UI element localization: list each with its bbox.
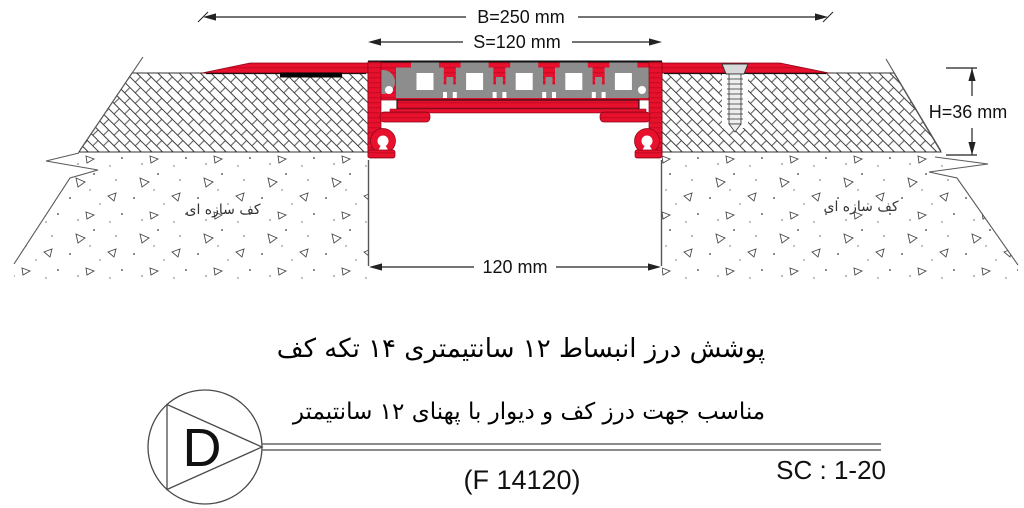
concrete-right — [662, 155, 1018, 283]
screed-left — [79, 73, 368, 152]
floor-label-left: کف سازه ای — [186, 202, 261, 218]
screed-right — [662, 73, 941, 152]
center-insert — [371, 63, 660, 99]
bridge-plate — [397, 100, 639, 109]
caption-line1: پوشش درز انبساط ۱۲ سانتیمتری ۱۴ تکه کف — [277, 334, 766, 364]
dim-joint-label: 120 mm — [482, 257, 547, 277]
detail-marker: D — [148, 390, 262, 504]
product-code: (F 14120) — [463, 465, 580, 495]
leader-line — [262, 444, 881, 450]
drawing-canvas: B=250 mm S=120 mm کف سازه ای کف سازه ای — [0, 0, 1024, 508]
anchor-bar — [280, 73, 342, 78]
joint-gap — [369, 160, 662, 266]
scale-label: SC : 1-20 — [776, 455, 886, 485]
left-wing — [202, 63, 368, 73]
dim-s-label: S=120 mm — [473, 32, 561, 52]
dimension-h: H=36 mm — [929, 68, 1008, 155]
dimension-s: S=120 mm — [368, 32, 662, 52]
dimension-joint: 120 mm — [369, 257, 661, 277]
dim-h-label: H=36 mm — [929, 102, 1008, 122]
dimension-b: B=250 mm — [198, 7, 833, 27]
dim-b-label: B=250 mm — [477, 7, 565, 27]
detail-letter: D — [183, 418, 222, 478]
concrete-left — [14, 155, 368, 283]
caption-line2: مناسب جهت درز کف و دیوار با پهنای ۱۲ سان… — [292, 399, 765, 425]
floor-label-right: کف سازه ای — [824, 199, 899, 215]
screw-icon — [722, 64, 748, 132]
